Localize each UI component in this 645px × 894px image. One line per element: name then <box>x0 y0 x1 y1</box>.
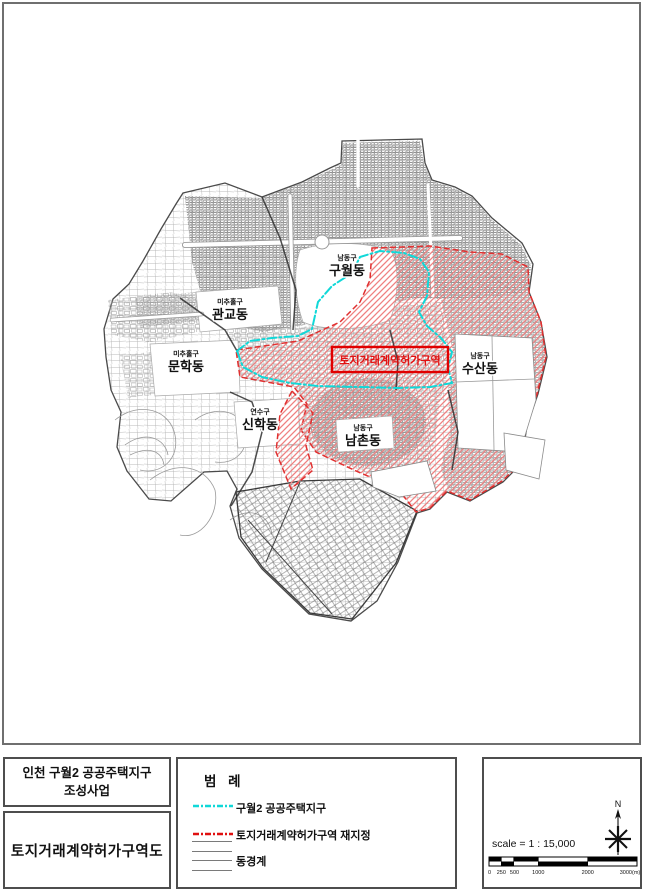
drawing-title-box: 토지거래계약허가구역도 <box>3 811 171 889</box>
north-label: N <box>615 799 622 809</box>
legend-label-permit-zone: 토지거래계약허가구역 재지정 <box>236 827 371 843</box>
tick-3000: 3000(m) <box>620 870 640 876</box>
project-title-line2: 조성사업 <box>23 782 152 800</box>
permit-zone-line-symbol <box>192 830 234 838</box>
tick-1000: 1000 <box>532 870 544 876</box>
tick-2000: 2000 <box>582 870 594 876</box>
district-label-munhak: 미추홀구 문학동 <box>168 349 204 374</box>
north-arrow-icon: N <box>605 799 631 855</box>
svg-text:남동구: 남동구 <box>353 423 373 432</box>
project-title-box: 인천 구월2 공공주택지구 조성사업 <box>3 757 171 807</box>
svg-text:남동구: 남동구 <box>470 351 490 360</box>
legend-title: 범 례 <box>204 770 245 790</box>
scale-panel: N scale = 1 : 15,000 0 250 500 <box>482 757 642 889</box>
scale-bar <box>489 857 637 866</box>
tick-0: 0 <box>488 870 491 876</box>
boundary-line-symbol-1 <box>192 841 232 842</box>
scale-bar-ticks: 0 250 500 1000 2000 3000(m) <box>488 870 640 876</box>
legend-panel: 범 례 구월2 공공주택지구 토지거래계약허가구역 재지정 동경계 <box>176 757 457 889</box>
scale-graphics: N scale = 1 : 15,000 0 250 500 <box>484 759 640 887</box>
svg-text:신학동: 신학동 <box>242 417 278 432</box>
municipal-area: 토지거래계약허가구역 <box>104 139 547 621</box>
svg-text:관교동: 관교동 <box>212 307 248 322</box>
svg-text:미추홀구: 미추홀구 <box>217 297 243 306</box>
boundary-line-symbol-3 <box>192 860 232 861</box>
project-title-line1: 인천 구월2 공공주택지구 <box>23 764 152 782</box>
svg-text:연수구: 연수구 <box>250 407 270 416</box>
scale-text: scale = 1 : 15,000 <box>492 838 575 850</box>
svg-text:남촌동: 남촌동 <box>345 433 381 448</box>
district-label-gwangyo: 미추홀구 관교동 <box>212 297 248 322</box>
svg-text:수산동: 수산동 <box>462 361 498 376</box>
svg-text:남동구: 남동구 <box>337 253 357 262</box>
legend-label-dong-boundary: 동경계 <box>236 853 266 869</box>
housing-district-line-symbol <box>192 802 234 810</box>
tick-500: 500 <box>510 870 519 876</box>
legend-label-housing-district: 구월2 공공주택지구 <box>236 800 326 816</box>
svg-text:구월동: 구월동 <box>329 263 365 278</box>
boundary-line-symbol-4 <box>192 870 232 871</box>
drawing-title-text: 토지거래계약허가구역도 <box>11 840 163 861</box>
boundary-line-symbol-2 <box>192 851 232 852</box>
project-title-text: 인천 구월2 공공주택지구 조성사업 <box>23 764 152 800</box>
svg-text:문학동: 문학동 <box>168 359 204 374</box>
svg-text:미추홀구: 미추홀구 <box>173 349 199 358</box>
cadastral-map: 토지거래계약허가구역 남동구 구월동 미추홀구 관교동 미추홀구 문학동 연수구… <box>0 0 645 750</box>
permit-zone-designation-label: 토지거래계약허가구역 <box>339 353 440 367</box>
tick-250: 250 <box>497 870 506 876</box>
field-grid-south <box>236 479 417 619</box>
